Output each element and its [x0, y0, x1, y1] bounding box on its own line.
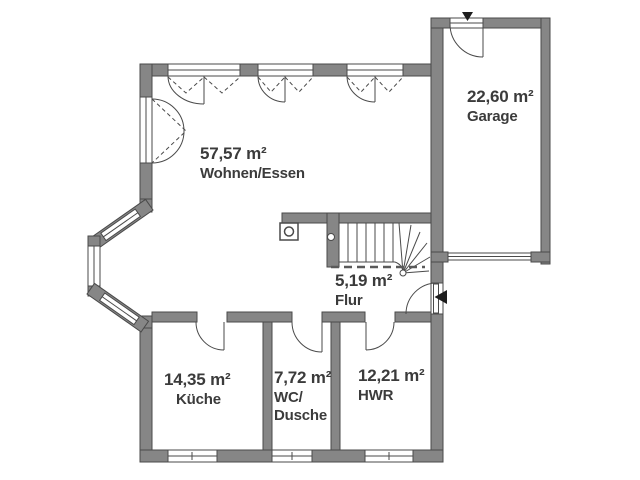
room-label-wohnen: 57,57 m² Wohnen/Essen	[200, 144, 305, 183]
garage-side-door	[450, 18, 483, 57]
room-name-flur: Flur	[335, 292, 392, 310]
room-name-wc: WC/	[274, 389, 331, 407]
bay-window	[87, 199, 153, 332]
room-label-flur: 5,19 m² Flur	[335, 271, 392, 310]
bottom-windows	[168, 450, 413, 462]
left-french-window	[140, 97, 186, 163]
room-name-kueche: Küche	[164, 391, 230, 409]
room-name2-wc: Dusche	[274, 407, 331, 425]
room-name-garage: Garage	[467, 108, 533, 126]
room-area-wc: 7,72 m²	[274, 368, 331, 389]
staircase	[328, 223, 431, 276]
garage-walls	[431, 18, 550, 264]
room-area-hwr: 12,21 m²	[358, 366, 424, 387]
chimney-icon	[280, 223, 298, 240]
room-label-kueche: 14,35 m² Küche	[164, 370, 230, 409]
room-area-garage: 22,60 m²	[467, 87, 533, 108]
room-label-wc: 7,72 m² WC/ Dusche	[274, 368, 331, 425]
room-area-kueche: 14,35 m²	[164, 370, 230, 391]
room-name-hwr: HWR	[358, 387, 424, 405]
room-area-wohnen: 57,57 m²	[200, 144, 305, 165]
top-french-windows	[168, 64, 403, 104]
floor-plan: 57,57 m² Wohnen/Essen 22,60 m² Garage 5,…	[0, 0, 640, 480]
room-name-wohnen: Wohnen/Essen	[200, 165, 305, 183]
garage-vehicle-door	[448, 253, 531, 260]
room-area-flur: 5,19 m²	[335, 271, 392, 292]
room-label-garage: 22,60 m² Garage	[467, 87, 533, 126]
room-label-hwr: 12,21 m² HWR	[358, 366, 424, 405]
